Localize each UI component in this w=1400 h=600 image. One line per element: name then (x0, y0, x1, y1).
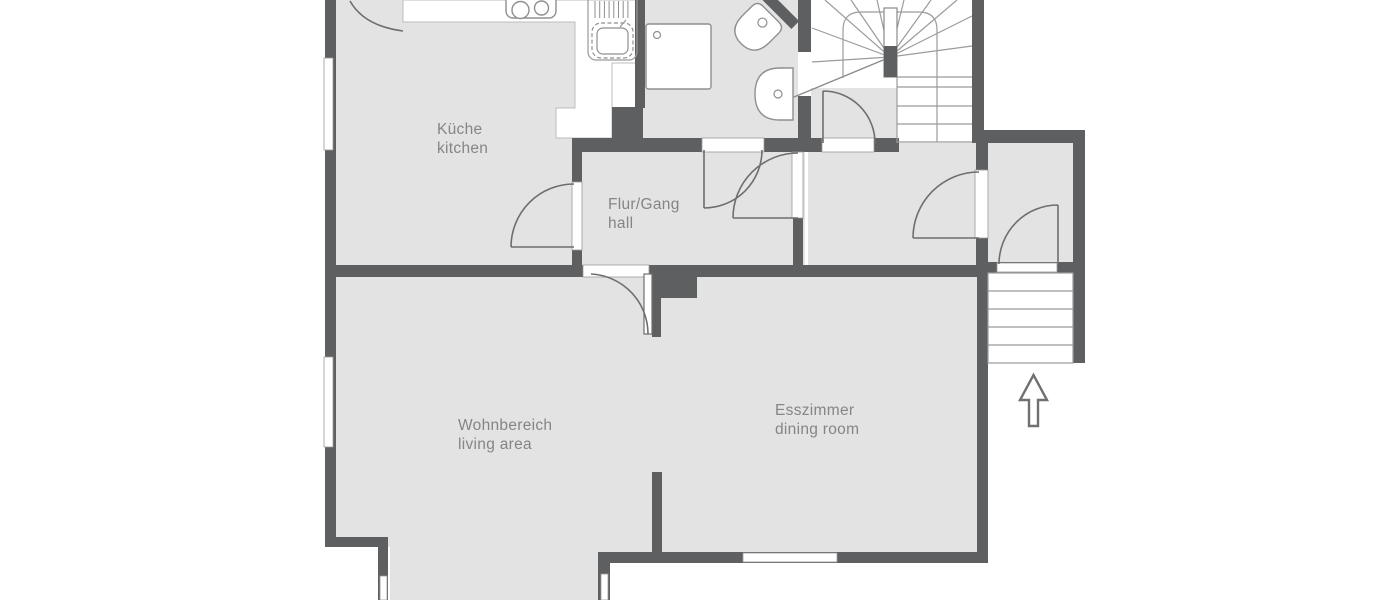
stove-icon (506, 0, 556, 19)
floor-plan-drawing: Küche kitchen Flur/Gang hall Wohnbereich… (0, 0, 1400, 600)
room-floors (336, 0, 1073, 600)
opening-kitchen-hall (572, 182, 582, 250)
wall-stair-right (972, 0, 984, 143)
dining-label-de: Esszimmer (775, 402, 854, 419)
entrance-arrow-icon (1020, 375, 1047, 426)
living-label-en: living area (458, 436, 532, 453)
hall-label-en: hall (608, 215, 633, 232)
kitchen-label-de: Küche (437, 121, 482, 138)
wall-outer-right (1073, 130, 1085, 363)
opening-stair-side (798, 52, 811, 96)
wall-stub-top (652, 265, 661, 337)
wall-stair-bottom-b (873, 138, 899, 152)
opening-hall-landing (792, 152, 803, 218)
window-extension-right (601, 574, 608, 600)
washbasin-icon (755, 68, 793, 120)
wall-hall-top (572, 138, 805, 152)
window-living (324, 357, 333, 447)
window-dining (743, 553, 837, 562)
hall-label-de: Flur/Gang (608, 196, 680, 213)
wall-stair-bottom-a (805, 138, 822, 152)
wall-vestibule-top (972, 130, 1085, 143)
entrance-stairs (988, 273, 1073, 426)
floor-plan: Küche kitchen Flur/Gang hall Wohnbereich… (0, 0, 1400, 600)
threshold-entry-door (997, 263, 1057, 272)
living-label-de: Wohnbereich (458, 417, 552, 434)
window-kitchen (324, 58, 333, 150)
wall-dining-right (977, 265, 988, 563)
wall-stub-bottom (652, 472, 662, 563)
threshold-bathroom (702, 138, 764, 152)
window-extension-left (380, 576, 387, 600)
wall-bathroom-corner (612, 107, 643, 138)
threshold-stair-door (822, 138, 874, 152)
stair-newel-post (884, 46, 897, 77)
opening-landing-vestibule (975, 170, 988, 238)
entrance-stairs-body (988, 273, 1073, 363)
vestibule-floor (985, 143, 1073, 263)
dining-label-en: dining room (775, 421, 859, 438)
shower-icon (646, 24, 711, 89)
wall-living-step (325, 537, 388, 547)
threshold-hall-living (583, 265, 649, 277)
kitchen-label-en: kitchen (437, 140, 488, 157)
hall-floor (572, 138, 805, 265)
